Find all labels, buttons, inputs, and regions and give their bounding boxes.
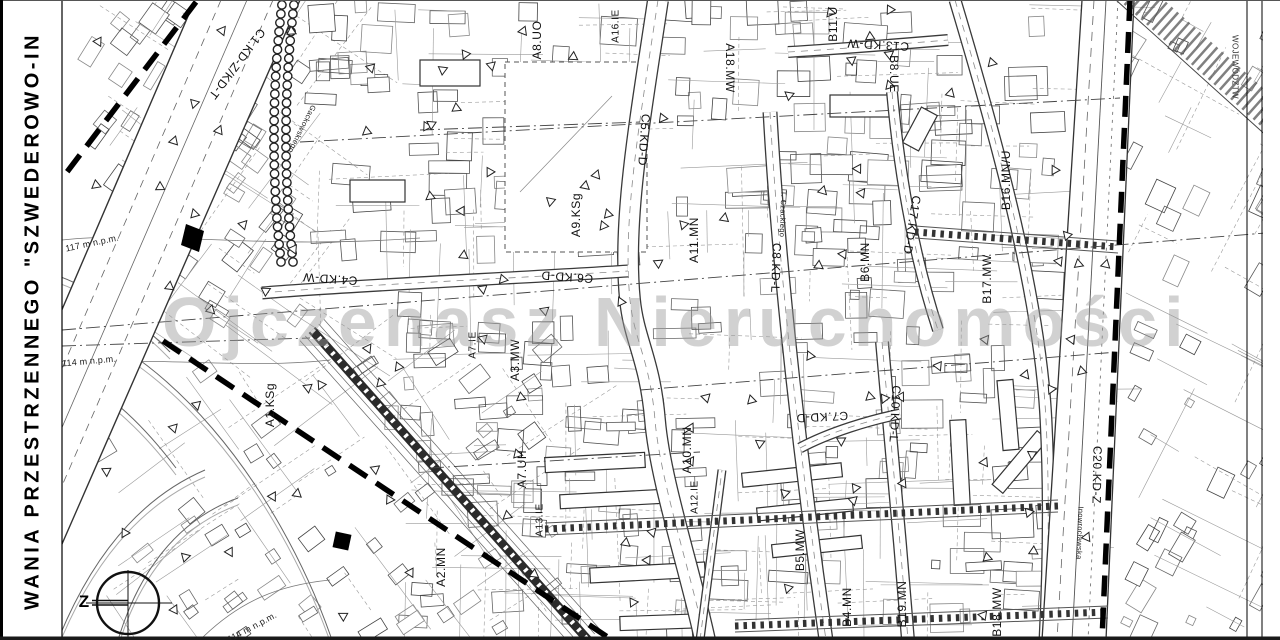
- street-name-czackiego: T. Czackiego: [778, 191, 789, 238]
- zone-label-b11u: B11.U: [826, 6, 840, 41]
- zone-label-a16ie: A16.IE: [611, 9, 622, 43]
- zone-label-b16mnu: B16.MN/U: [999, 150, 1013, 210]
- zone-label-a12ie: A12.IE: [690, 480, 701, 514]
- zone-label-b5mw: B5.MW: [793, 529, 807, 571]
- street-name-inowroclawska: Inowrocławska: [1075, 506, 1086, 559]
- right-margin-label: WOJEWÓDZTW: [1231, 35, 1240, 99]
- road-label-c10: C10.KD-L: [887, 385, 904, 443]
- side-title: WANIA PRZESTRZENNEGO "SZWEDEROWO-IN: [22, 32, 45, 610]
- zone-label-a1ksg: A1.KSg: [263, 383, 277, 427]
- zone-label-a11mn: A11.MN: [687, 217, 701, 263]
- zone-label-a2mn: A2.MN: [434, 547, 448, 587]
- zone-label-a8uo: A8.UO: [530, 20, 544, 59]
- zone-label-b18mw: B18.MW: [990, 587, 1004, 637]
- zone-label-a9ksg: A9.KSg: [569, 193, 583, 237]
- road-label-c20: C20.KD-Z: [1089, 446, 1104, 504]
- zoning-plan-sheet: A1.KSg A2.MN A3.MW A7.IE A7.UH A8.UO A9.…: [0, 0, 1280, 640]
- zone-label-a13ie: A13.IE: [535, 503, 546, 537]
- zone-label-b19mn: B19.MN: [895, 581, 909, 628]
- road-label-c7: C7.KD-D: [796, 409, 849, 426]
- zone-label-a7uh: A7.UH: [515, 450, 529, 488]
- zone-label-b6mn: B6.MN: [858, 242, 872, 282]
- zone-label-a10mn: A10.MN: [680, 427, 694, 474]
- zone-label-b8ue: B8.UE: [887, 55, 901, 93]
- zone-label-a18mw: A18.MW: [723, 43, 737, 93]
- watermark: Ojczenasz Nieruchomości: [162, 282, 1191, 362]
- compass-west-label: Z: [79, 592, 89, 612]
- zone-label-b4mn: B4.MN: [840, 587, 854, 627]
